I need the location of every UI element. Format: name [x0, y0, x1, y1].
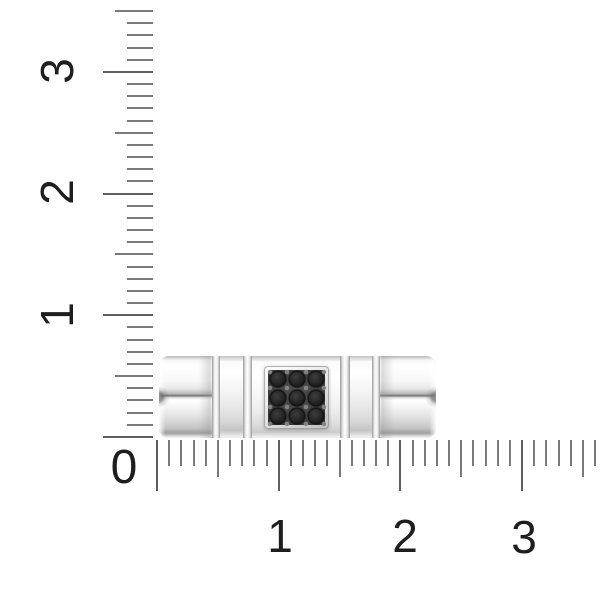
- stone-prong: [304, 386, 308, 390]
- ruler-tick: [127, 34, 153, 36]
- ruler-tick: [253, 440, 255, 466]
- ruler-tick: [570, 440, 572, 466]
- ring-ridge: [340, 356, 350, 438]
- ruler-tick: [127, 229, 153, 231]
- stone-prong: [268, 370, 272, 374]
- ruler-tick: [545, 440, 547, 466]
- ruler-tick: [180, 440, 182, 466]
- ruler-tick: [127, 22, 153, 24]
- ruler-tick: [472, 440, 474, 466]
- ring: [159, 356, 436, 438]
- ruler-tick: [278, 440, 280, 491]
- ring-right-pillow-segment: [380, 356, 436, 438]
- ruler-tick: [156, 440, 158, 491]
- ruler-tick: [127, 144, 153, 146]
- stone-prong: [304, 370, 308, 374]
- ruler-tick: [103, 436, 153, 438]
- ruler-tick: [127, 168, 153, 170]
- ruler-tick: [115, 375, 153, 377]
- ruler-tick: [594, 440, 596, 466]
- ruler-tick: [127, 180, 153, 182]
- ring-stone-plate: [264, 366, 329, 429]
- ring-stone: [307, 371, 324, 388]
- ruler-tick: [509, 440, 511, 466]
- ring-stone: [269, 389, 286, 406]
- stone-prong: [322, 405, 326, 409]
- ruler-tick: [115, 253, 153, 255]
- horizontal-ruler-label-1: 1: [267, 513, 293, 559]
- ruler-tick: [412, 440, 414, 466]
- ring-ridge: [243, 356, 252, 438]
- ruler-tick: [103, 71, 153, 73]
- ruler-tick: [339, 440, 341, 477]
- ring-stone: [288, 389, 305, 406]
- ruler-tick: [127, 47, 153, 49]
- stone-prong: [322, 386, 326, 390]
- vertical-ruler-label-2: 2: [34, 179, 80, 205]
- ring-left-pillow-segment: [159, 356, 212, 438]
- ruler-tick: [127, 59, 153, 61]
- stone-prong: [268, 386, 272, 390]
- ruler-tick: [290, 440, 292, 466]
- ring-ridge: [212, 356, 220, 438]
- ring-stone: [288, 371, 305, 388]
- ruler-tick: [127, 205, 153, 207]
- ruler-tick: [193, 440, 195, 466]
- ruler-tick: [127, 120, 153, 122]
- stone-prong: [285, 405, 289, 409]
- ruler-tick: [115, 10, 153, 12]
- ruler-tick: [127, 278, 153, 280]
- ruler-tick: [314, 440, 316, 466]
- ring-flat-segment: [350, 356, 372, 438]
- ring-flat-segment: [220, 356, 243, 438]
- ring-stone: [269, 407, 286, 424]
- ruler-tick: [127, 412, 153, 414]
- ruler-tick: [302, 440, 304, 466]
- ruler-tick: [127, 339, 153, 341]
- ruler-tick: [424, 440, 426, 466]
- ruler-tick: [205, 440, 207, 466]
- ruler-tick: [127, 290, 153, 292]
- stone-prong: [285, 386, 289, 390]
- ruler-tick: [168, 440, 170, 466]
- ruler-tick: [448, 440, 450, 466]
- ring-stone: [269, 371, 286, 388]
- ruler-tick: [485, 440, 487, 466]
- ruler-tick: [326, 440, 328, 466]
- ruler-tick: [127, 424, 153, 426]
- stone-prong: [304, 422, 308, 426]
- ruler-tick: [127, 83, 153, 85]
- ruler-tick: [127, 363, 153, 365]
- ruler-tick: [363, 440, 365, 466]
- stone-prong: [268, 405, 272, 409]
- ring-ridge: [372, 356, 380, 438]
- ruler-tick: [351, 440, 353, 466]
- ruler-tick: [115, 132, 153, 134]
- ruler-tick: [460, 440, 462, 477]
- horizontal-ruler-label-3: 3: [511, 514, 537, 560]
- ruler-tick: [127, 156, 153, 158]
- ruler-tick: [127, 326, 153, 328]
- ruler-tick: [375, 440, 377, 466]
- stone-prong: [322, 370, 326, 374]
- ring-stone: [288, 407, 305, 424]
- ruler-tick: [399, 440, 401, 491]
- vertical-ruler-label-3: 3: [34, 58, 80, 84]
- ruler-tick: [533, 440, 535, 466]
- stone-prong: [285, 422, 289, 426]
- ruler-tick: [521, 440, 523, 491]
- stone-prong: [285, 370, 289, 374]
- ruler-tick: [127, 302, 153, 304]
- ring-stone: [307, 389, 324, 406]
- ruler-tick: [266, 440, 268, 466]
- ruler-tick: [387, 440, 389, 466]
- vertical-ruler-label-1: 1: [34, 302, 80, 328]
- ruler-tick: [582, 440, 584, 477]
- ruler-tick: [103, 193, 153, 195]
- ruler-tick: [127, 107, 153, 109]
- ruler-tick: [103, 314, 153, 316]
- stone-prong: [268, 422, 272, 426]
- ruler-tick: [558, 440, 560, 466]
- ruler-tick: [127, 95, 153, 97]
- ruler-tick: [127, 217, 153, 219]
- ruler-tick: [229, 440, 231, 466]
- ruler-tick: [127, 241, 153, 243]
- ruler-origin-label: 0: [111, 444, 138, 492]
- ruler-tick: [127, 387, 153, 389]
- horizontal-ruler-label-2: 2: [392, 513, 418, 559]
- ruler-tick: [217, 440, 219, 477]
- ruler-tick: [127, 351, 153, 353]
- stone-bed: [268, 370, 325, 425]
- stone-prong: [304, 405, 308, 409]
- ruler-tick: [127, 266, 153, 268]
- ruler-tick: [436, 440, 438, 466]
- ruler-tick: [497, 440, 499, 466]
- ruler-tick: [127, 399, 153, 401]
- ruler-tick: [241, 440, 243, 466]
- product-photo: 3 2 1 0 1 2 3: [0, 0, 600, 600]
- stone-prong: [322, 422, 326, 426]
